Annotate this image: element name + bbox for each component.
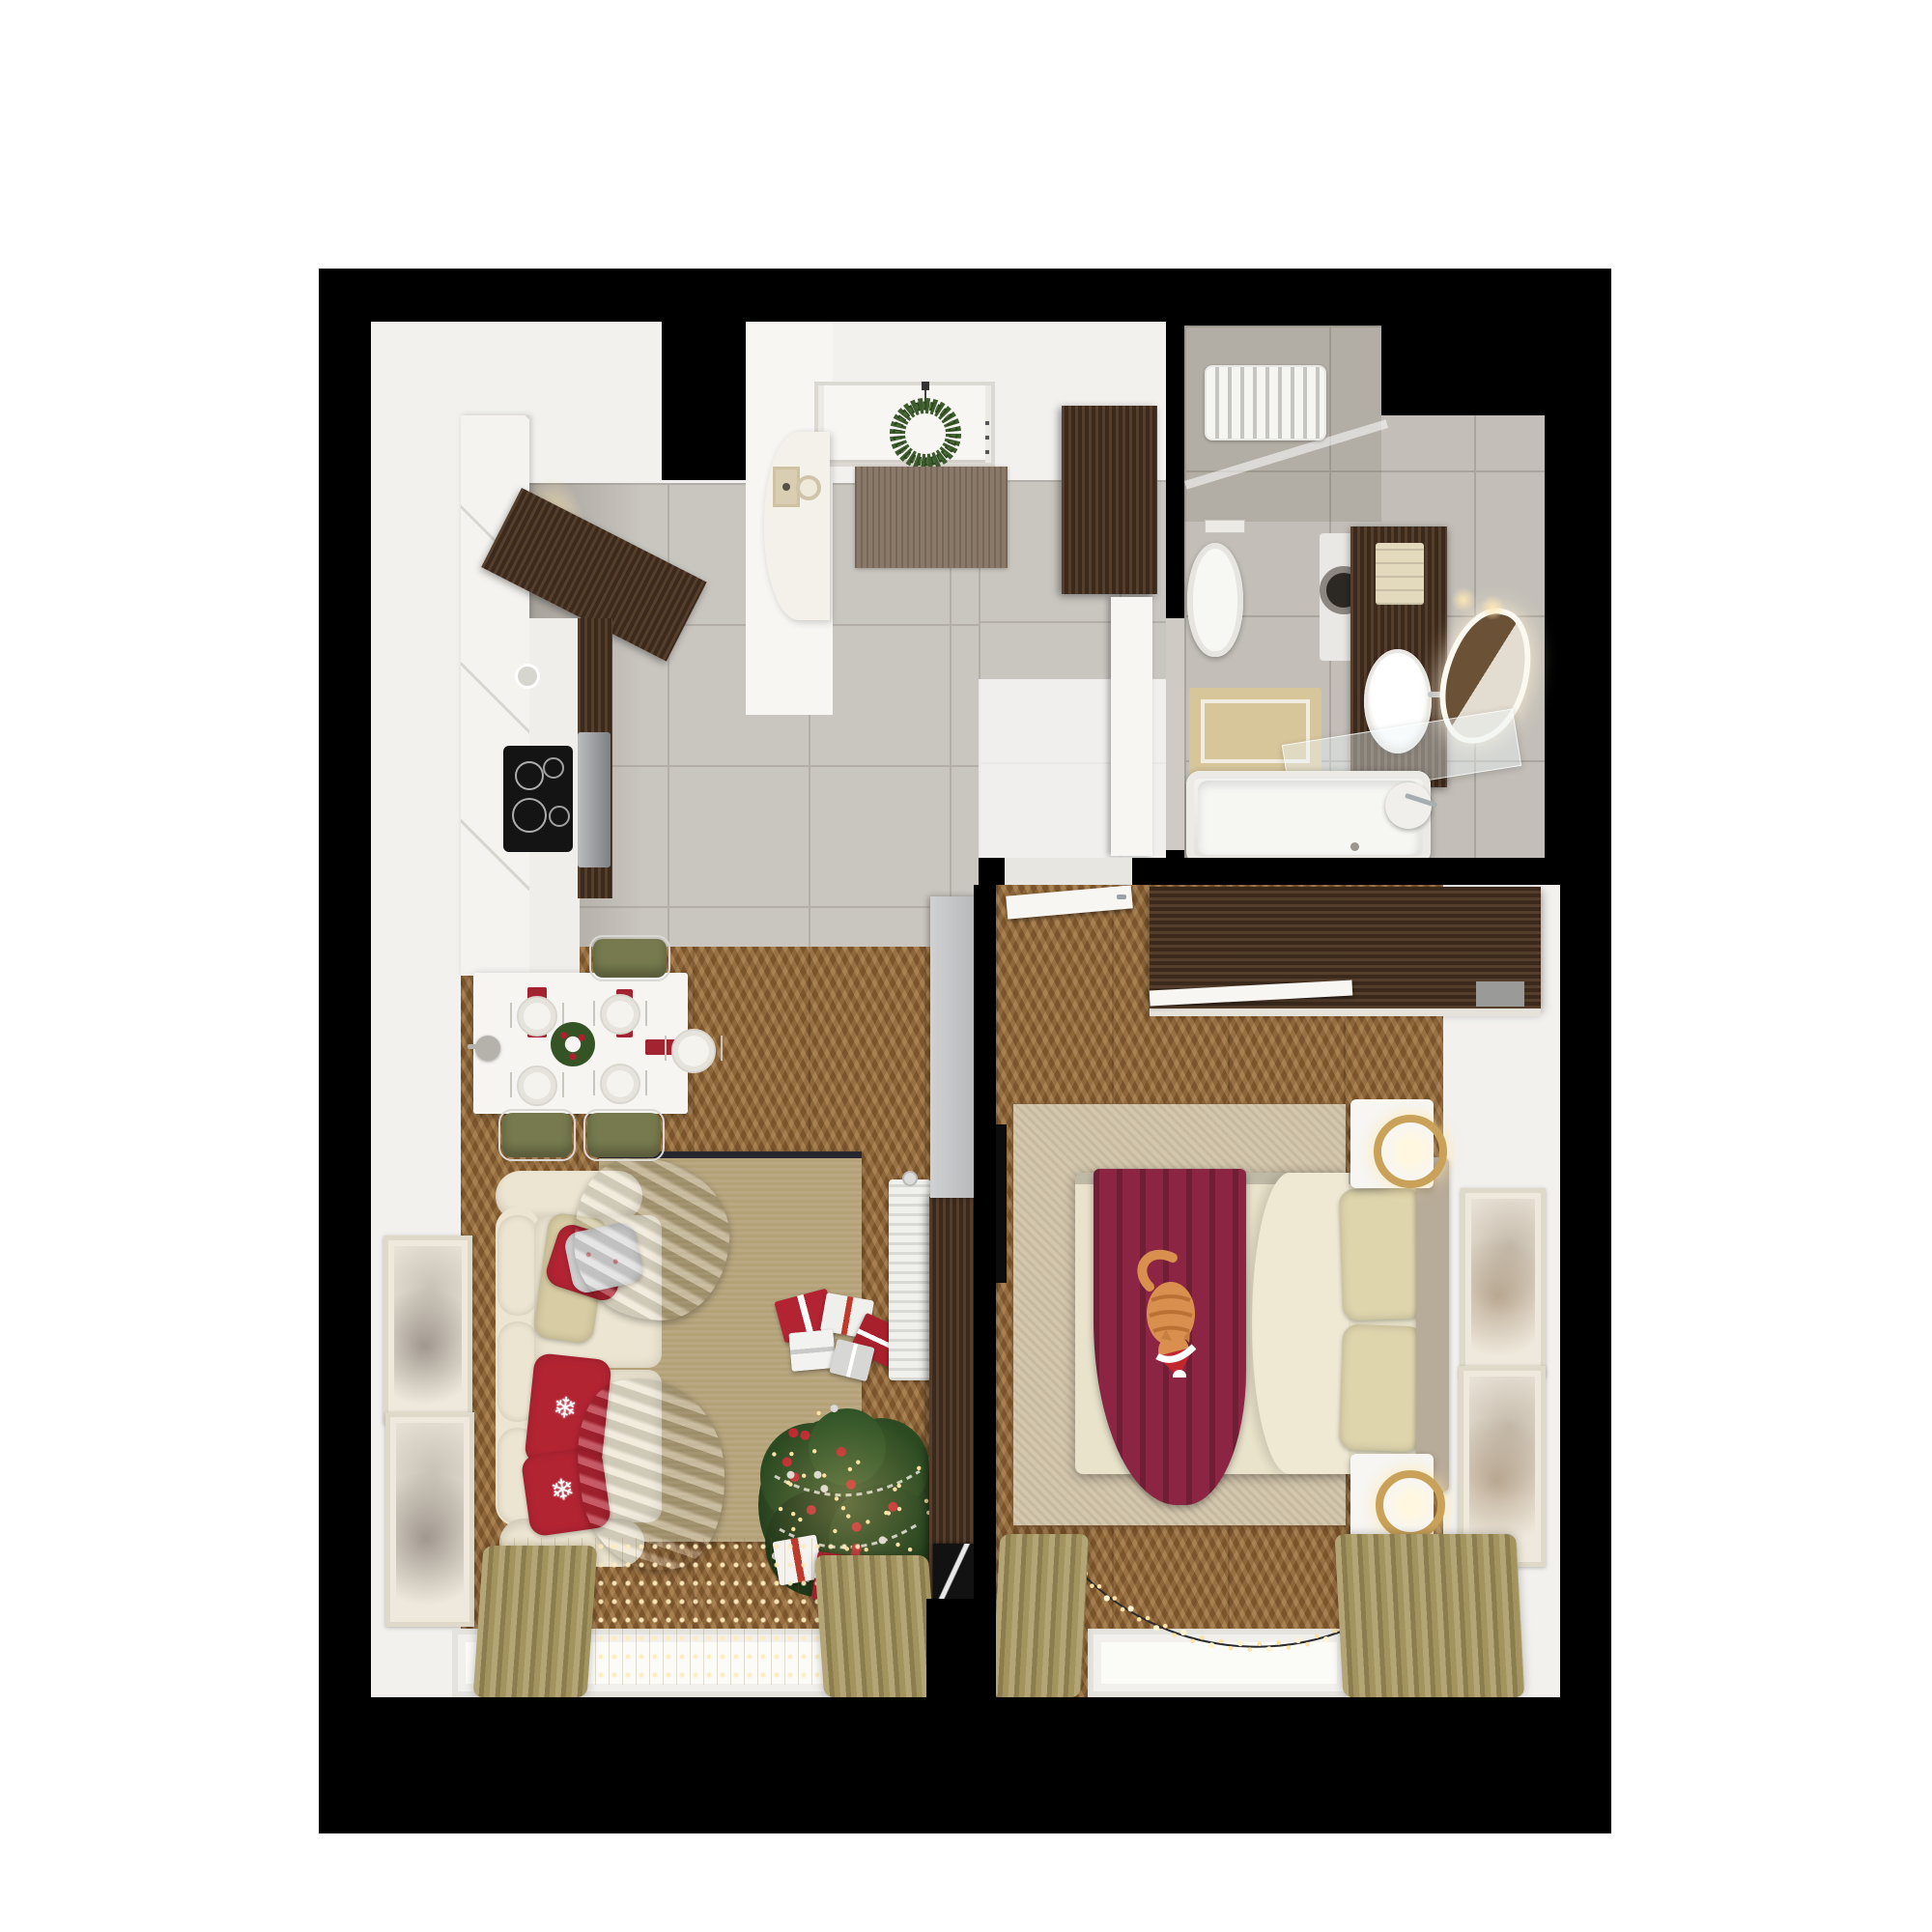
hall-wardrobe [1062,406,1157,594]
living-radiator [889,1179,931,1380]
oven [578,732,611,867]
plate-1 [517,996,557,1037]
wall-light-right [1480,595,1505,620]
plate-4 [600,1064,640,1104]
dining-chair-bottom-left [502,1113,572,1157]
cooktop-burner-1 [515,761,544,790]
bedroom-wall-art-1 [1461,1188,1546,1378]
dining-chair-bottom-right [587,1113,661,1157]
living-bedroom-wall [974,885,996,1697]
sofa-back-cushion-1 [497,1215,538,1316]
living-wall-art-2 [385,1412,474,1627]
bed-pillow-top [1339,1187,1425,1321]
bedroom-curtain-right [1335,1534,1525,1697]
plate-2 [600,994,640,1035]
bathroom-corner-notch [1381,326,1545,415]
dining-chair-top [593,939,667,978]
wreath-hook [922,382,929,390]
gold-ring-lamp-top [1374,1115,1447,1188]
cat-tail [1142,1255,1173,1287]
wall-light-left [1451,587,1476,612]
kitchen-column-notch [662,322,746,480]
door-hinge-dot-2 [985,436,989,440]
table-centerpiece-wreath [551,1022,595,1066]
bathtub-interior [1198,781,1419,855]
doormat [855,467,1008,568]
floor-plan-stage: ❄ ❄ [0,0,1932,1932]
bedroom-door-handle [1117,895,1126,899]
radiator-valve [902,1171,918,1186]
tub-drain [1350,842,1359,851]
console-round-tray [796,475,821,500]
cooktop-burner-3 [512,798,547,833]
bedroom-tv [996,1124,1007,1283]
headboard [1416,1157,1449,1492]
living-curtain-right [814,1555,938,1697]
toilet [1187,543,1243,657]
duvet-fold [1252,1173,1349,1474]
teapot [475,1036,500,1061]
tub-deck-stool [1385,782,1432,829]
bed-pillow-bottom [1339,1324,1424,1453]
plate-5 [671,1029,716,1073]
round-prep-sink [515,664,540,689]
flush-plate [1205,520,1245,533]
snowflake-print: ❄ [552,1393,579,1424]
gray-storage-cabinet [930,896,980,1198]
living-curtain-left [473,1546,598,1697]
entry-console [764,432,830,620]
cooktop-burner-4 [549,806,570,827]
door-hinge-dot-3 [985,450,989,454]
bedroom-curtain-left [992,1534,1090,1697]
bathroom-door-open [1111,597,1152,856]
gold-ring-lamp-bottom [1376,1470,1445,1540]
towel-radiator [1205,365,1326,440]
door-hinge-dot-1 [985,421,989,425]
apartment-plan: ❄ ❄ [319,269,1611,1833]
bathroom-doorway-gap [1166,618,1184,850]
window-pier-black [926,1599,979,1697]
bedroom-doorway-threshold [1005,858,1132,885]
christmas-wreath [877,382,974,478]
console-tray-knob [782,483,790,491]
leaning-poster [933,1544,974,1605]
plate-3 [517,1065,557,1106]
wardrobe-track [1150,1009,1541,1016]
snowflake-print: ❄ [549,1475,577,1507]
cooktop-burner-2 [543,757,564,779]
teapot-spout [468,1044,477,1049]
towel-stack [1376,543,1424,605]
wardrobe-hardware [1476,981,1524,1007]
cat-with-santa-hat [1113,1242,1229,1378]
living-wall-art-1 [384,1236,472,1424]
